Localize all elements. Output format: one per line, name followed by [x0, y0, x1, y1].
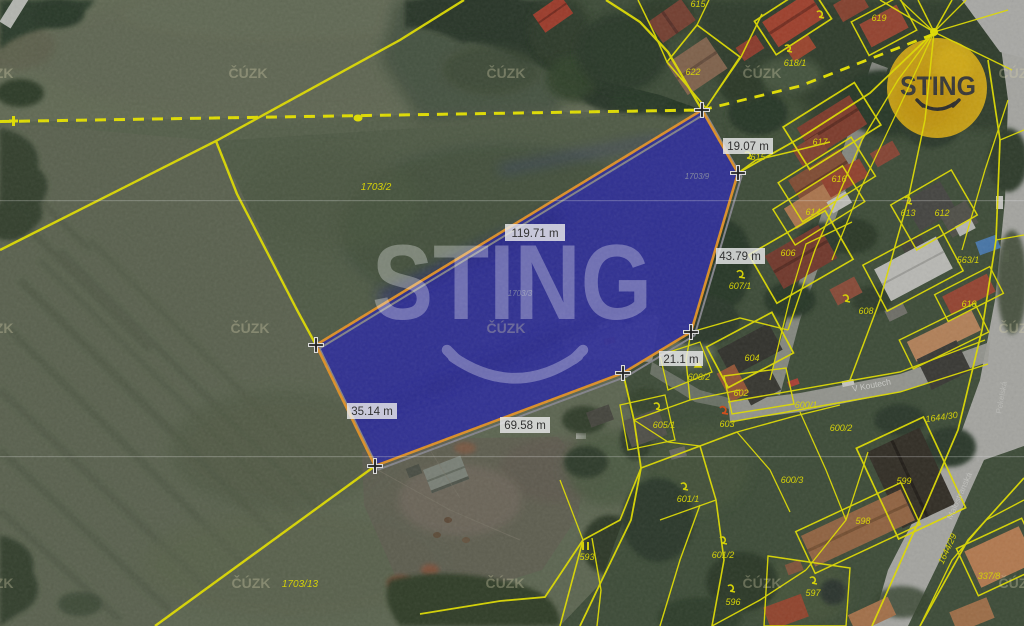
svg-text:ČÚZK: ČÚZK [999, 319, 1024, 336]
svg-text:ČÚZK: ČÚZK [232, 574, 271, 591]
svg-text:ČÚZK: ČÚZK [743, 574, 782, 591]
svg-text:ČÚZK: ČÚZK [0, 319, 13, 336]
svg-text:ČÚZK: ČÚZK [0, 64, 13, 81]
svg-text:ČÚZK: ČÚZK [486, 574, 525, 591]
svg-text:ČÚZK: ČÚZK [487, 64, 526, 81]
svg-text:ČÚZK: ČÚZK [743, 64, 782, 81]
svg-text:ČÚZK: ČÚZK [999, 574, 1024, 591]
svg-text:19.07 m: 19.07 m [727, 141, 769, 153]
svg-text:STING: STING [372, 222, 652, 342]
svg-text:ČÚZK: ČÚZK [0, 574, 13, 591]
svg-text:ČÚZK: ČÚZK [999, 64, 1024, 81]
svg-text:69.58 m: 69.58 m [504, 420, 546, 432]
svg-text:35.14 m: 35.14 m [351, 406, 393, 418]
svg-text:21.1 m: 21.1 m [663, 354, 698, 366]
svg-text:ČÚZK: ČÚZK [229, 64, 268, 81]
svg-text:ČÚZK: ČÚZK [231, 319, 270, 336]
svg-text:43.79 m: 43.79 m [719, 251, 761, 263]
